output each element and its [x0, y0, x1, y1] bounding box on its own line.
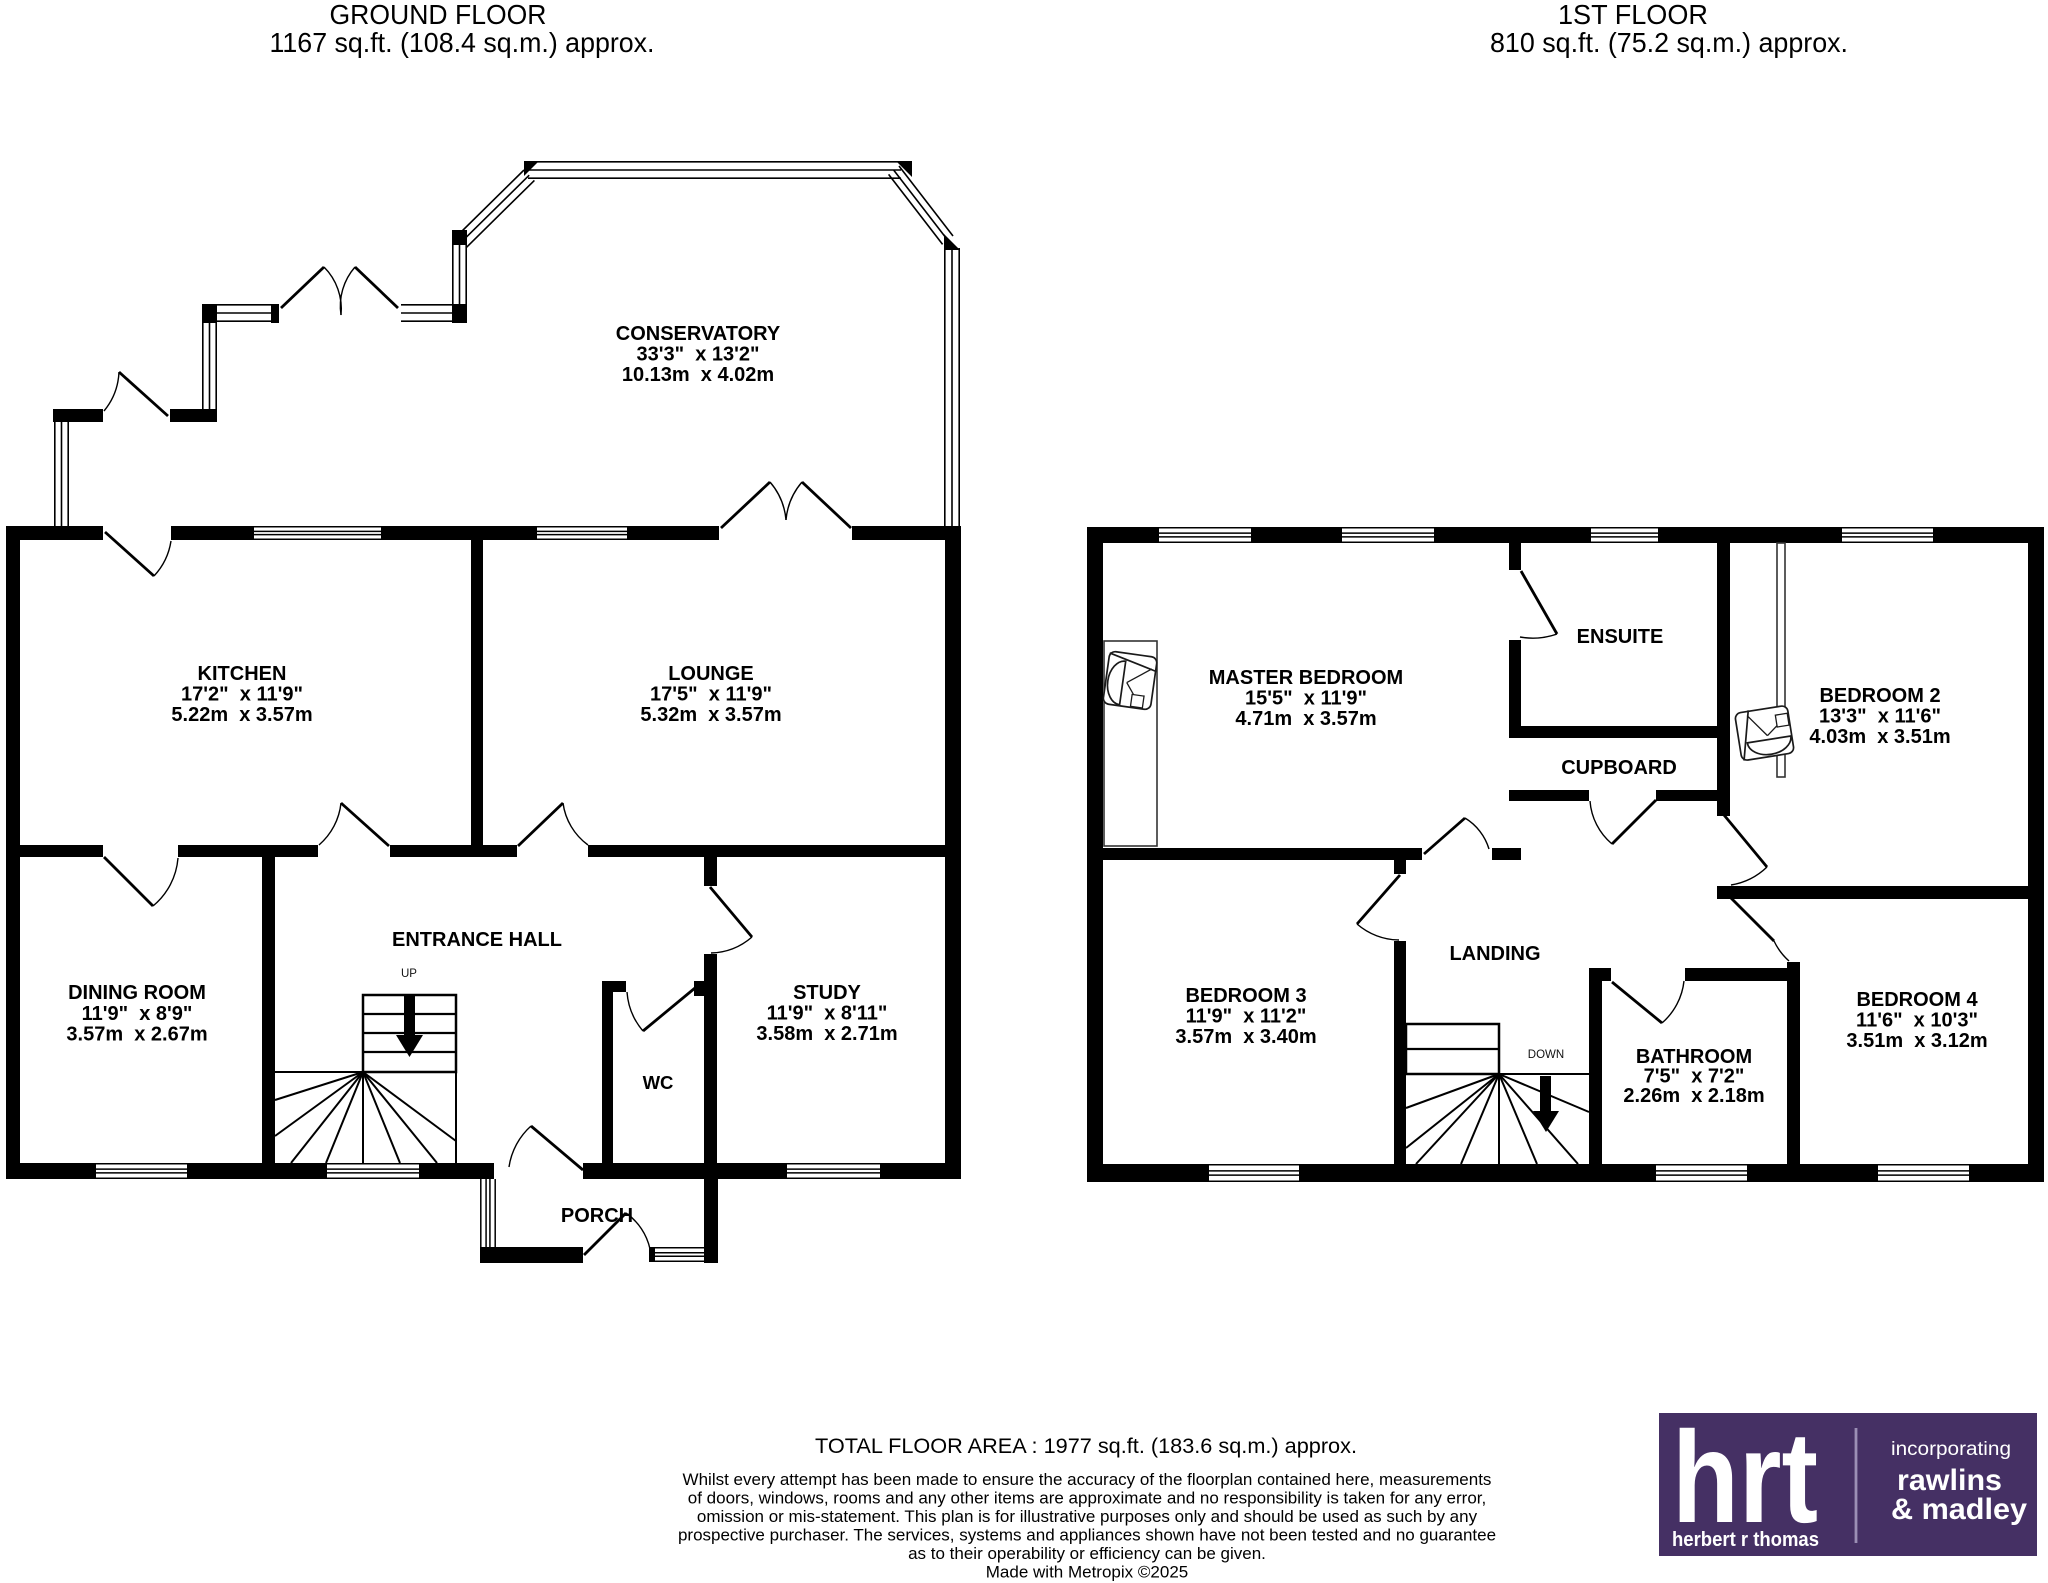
svg-text:ENSUITE: ENSUITE	[1577, 626, 1664, 648]
svg-text:1ST FLOOR: 1ST FLOOR	[1558, 0, 1708, 30]
svg-text:2.26m x 2.18m: 2.26m x 2.18m	[1623, 1085, 1764, 1107]
svg-text:herbert r thomas: herbert r thomas	[1672, 1529, 1819, 1551]
svg-text:5.22m x 3.57m: 5.22m x 3.57m	[171, 704, 312, 726]
svg-text:17'5" x 11'9": 17'5" x 11'9"	[650, 684, 772, 706]
svg-text:3.57m x 2.67m: 3.57m x 2.67m	[66, 1024, 207, 1046]
svg-text:LANDING: LANDING	[1449, 943, 1540, 965]
svg-text:STUDY: STUDY	[793, 982, 861, 1004]
svg-text:33'3" x 13'2": 33'3" x 13'2"	[636, 344, 759, 366]
svg-text:10.13m x 4.02m: 10.13m x 4.02m	[622, 364, 774, 386]
svg-text:11'9" x 8'11": 11'9" x 8'11"	[767, 1003, 888, 1025]
svg-text:CONSERVATORY: CONSERVATORY	[616, 323, 781, 345]
svg-text:BEDROOM 3: BEDROOM 3	[1185, 985, 1306, 1007]
svg-text:DINING ROOM: DINING ROOM	[68, 982, 206, 1004]
svg-text:TOTAL FLOOR AREA : 1977 sq.ft.: TOTAL FLOOR AREA : 1977 sq.ft. (183.6 sq…	[815, 1434, 1357, 1458]
svg-text:MASTER BEDROOM: MASTER BEDROOM	[1209, 667, 1403, 689]
svg-text:ENTRANCE HALL: ENTRANCE HALL	[392, 929, 562, 951]
svg-text:incorporating: incorporating	[1891, 1439, 2011, 1460]
svg-text:of doors, windows, rooms and a: of doors, windows, rooms and any other i…	[688, 1489, 1486, 1508]
svg-text:PORCH: PORCH	[561, 1205, 633, 1227]
svg-text:UP: UP	[401, 968, 417, 980]
svg-text:as to their operability or eff: as to their operability or efficiency ca…	[908, 1544, 1266, 1563]
svg-text:810 sq.ft. (75.2 sq.m.) approx: 810 sq.ft. (75.2 sq.m.) approx.	[1490, 27, 1848, 58]
svg-text:1167 sq.ft. (108.4 sq.m.) appr: 1167 sq.ft. (108.4 sq.m.) approx.	[270, 27, 655, 58]
svg-text:omission or mis-statement. Thi: omission or mis-statement. This plan is …	[697, 1507, 1478, 1526]
svg-text:17'2" x 11'9": 17'2" x 11'9"	[181, 684, 303, 706]
svg-text:4.03m x 3.51m: 4.03m x 3.51m	[1809, 726, 1950, 748]
svg-text:KITCHEN: KITCHEN	[198, 663, 287, 685]
svg-text:DOWN: DOWN	[1528, 1049, 1564, 1061]
svg-text:GROUND FLOOR: GROUND FLOOR	[330, 0, 547, 30]
svg-text:11'9" x 8'9": 11'9" x 8'9"	[82, 1003, 193, 1025]
svg-text:13'3" x 11'6": 13'3" x 11'6"	[1819, 706, 1941, 728]
svg-text:3.51m x 3.12m: 3.51m x 3.12m	[1846, 1030, 1987, 1052]
svg-text:3.58m x 2.71m: 3.58m x 2.71m	[756, 1023, 897, 1045]
svg-text:& madley: & madley	[1891, 1493, 2027, 1526]
svg-text:CUPBOARD: CUPBOARD	[1561, 757, 1677, 779]
svg-text:Made with Metropix ©2025: Made with Metropix ©2025	[986, 1563, 1188, 1582]
svg-text:Whilst every attempt has been: Whilst every attempt has been made to en…	[683, 1470, 1492, 1489]
svg-text:5.32m x 3.57m: 5.32m x 3.57m	[640, 704, 781, 726]
svg-text:15'5" x 11'9": 15'5" x 11'9"	[1245, 688, 1367, 710]
svg-text:11'9" x 11'2": 11'9" x 11'2"	[1186, 1006, 1307, 1028]
svg-text:BEDROOM 2: BEDROOM 2	[1819, 685, 1940, 707]
svg-text:LOUNGE: LOUNGE	[668, 663, 754, 685]
svg-text:WC: WC	[643, 1072, 674, 1093]
svg-text:prospective purchaser. The ser: prospective purchaser. The services, sys…	[678, 1526, 1496, 1545]
svg-text:4.71m x 3.57m: 4.71m x 3.57m	[1235, 708, 1376, 730]
svg-text:BEDROOM 4: BEDROOM 4	[1856, 989, 1978, 1011]
svg-text:3.57m x 3.40m: 3.57m x 3.40m	[1175, 1026, 1316, 1048]
svg-text:11'6" x 10'3": 11'6" x 10'3"	[1856, 1010, 1978, 1032]
